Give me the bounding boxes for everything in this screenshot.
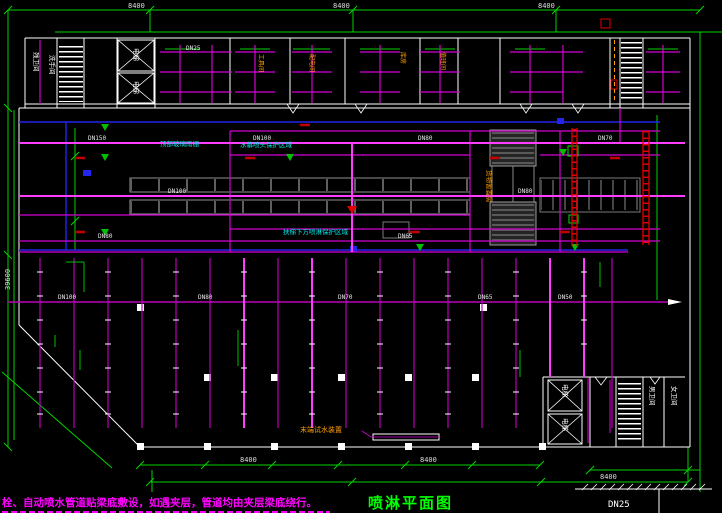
room-label-elevator-top-1: 电梯 xyxy=(132,48,141,62)
dn-label: DN80 xyxy=(518,188,533,195)
dim-bottom-1: 8400 xyxy=(240,456,257,464)
bay-dimension-lines xyxy=(71,49,678,250)
escalator-lower xyxy=(490,202,536,245)
dim-top-1: 8400 xyxy=(128,2,145,10)
bay-label-1: 工具间 xyxy=(257,54,265,72)
sprinkler-plan-drawing: 喷淋平面图 栓、自动喷水管道贴梁底敷设，如遇夹层，管道均由夹层梁底绕行。 DN2… xyxy=(0,0,722,513)
bay-label-4: 值班间 xyxy=(439,52,447,70)
region-label-goods-room: 货物暂置房 xyxy=(485,170,494,203)
general-note: 栓、自动喷水管道贴梁底敷设，如遇夹层，管道均由夹层梁底绕行。 xyxy=(2,496,317,509)
sprinkler-pipes xyxy=(8,40,685,443)
drawing-title: 喷淋平面图 xyxy=(368,494,453,512)
annotations: 喷淋平面图 栓、自动喷水管道贴梁底敷设，如遇夹层，管道均由夹层梁底绕行。 DN2… xyxy=(2,2,679,512)
dim-left: 39600 xyxy=(4,269,12,290)
dn-label: DN70 xyxy=(338,294,353,301)
bay-label-3: 库房 xyxy=(399,52,407,64)
room-label-elevator-bottom-2: 电梯 xyxy=(561,418,570,432)
bright-main-pipes xyxy=(19,143,685,428)
room-label-toilet-left-1: 残卫间 xyxy=(32,52,41,72)
region-label-glass-canopy: 顶部玻璃雨棚 xyxy=(160,139,200,148)
room-label-toilet-left-2: 洗手间 xyxy=(48,55,57,75)
dn-label: DN100 xyxy=(58,294,76,301)
dn-label: DN150 xyxy=(88,135,106,142)
machinery xyxy=(130,130,640,245)
bay-label-2: 配电间 xyxy=(308,54,316,72)
ground-symbol xyxy=(575,484,712,513)
hall-branch-pipes xyxy=(40,258,612,443)
right-bottom-dimension xyxy=(586,449,700,474)
diagonal-dimension xyxy=(2,372,112,468)
dn-label: DN25 xyxy=(186,45,201,52)
dim-top-2: 8400 xyxy=(333,2,350,10)
room-label-elevator-bottom-1: 电梯 xyxy=(561,384,570,398)
bottom-dimension-line-1 xyxy=(136,461,544,469)
room-label-elevator-top-2: 电梯 xyxy=(132,81,141,95)
dn-label: DN80 xyxy=(98,233,113,240)
dim-bottom-3: 8400 xyxy=(600,473,617,481)
dn-label: DN80 xyxy=(198,294,213,301)
main-pipe-arrow xyxy=(668,299,682,305)
footer-pipe-label: DN25 xyxy=(608,500,630,510)
dn-label: DN70 xyxy=(598,135,613,142)
door-swings xyxy=(287,104,660,385)
dn-label: DN65 xyxy=(478,294,493,301)
cad-canvas: 喷淋平面图 栓、自动喷水管道贴梁底敷设，如遇夹层，管道均由夹层梁底绕行。 DN2… xyxy=(0,0,722,513)
dn-label: DN65 xyxy=(398,233,413,240)
building-walls xyxy=(19,38,690,450)
dn-label: DN80 xyxy=(418,135,433,142)
outer-walls xyxy=(19,38,690,447)
dn-label: DN100 xyxy=(168,188,186,195)
room-label-mens-toilet: 男卫间 xyxy=(648,386,656,406)
ground-line xyxy=(575,489,712,513)
dn-label: DN100 xyxy=(253,135,271,142)
label-end-test-device: 末端试水装置 xyxy=(300,425,342,434)
dim-bottom-2: 8400 xyxy=(420,456,437,464)
valve-blue-3 xyxy=(557,118,564,124)
dim-top-3: 8400 xyxy=(538,2,555,10)
room-label-womens-toilet: 女卫间 xyxy=(670,386,679,406)
region-label-escalator: 扶梯下方喷淋保护区域 xyxy=(283,227,349,236)
valve-blue-1 xyxy=(83,170,91,176)
red-box-top xyxy=(601,19,610,28)
dn-label: DN50 xyxy=(558,294,573,301)
